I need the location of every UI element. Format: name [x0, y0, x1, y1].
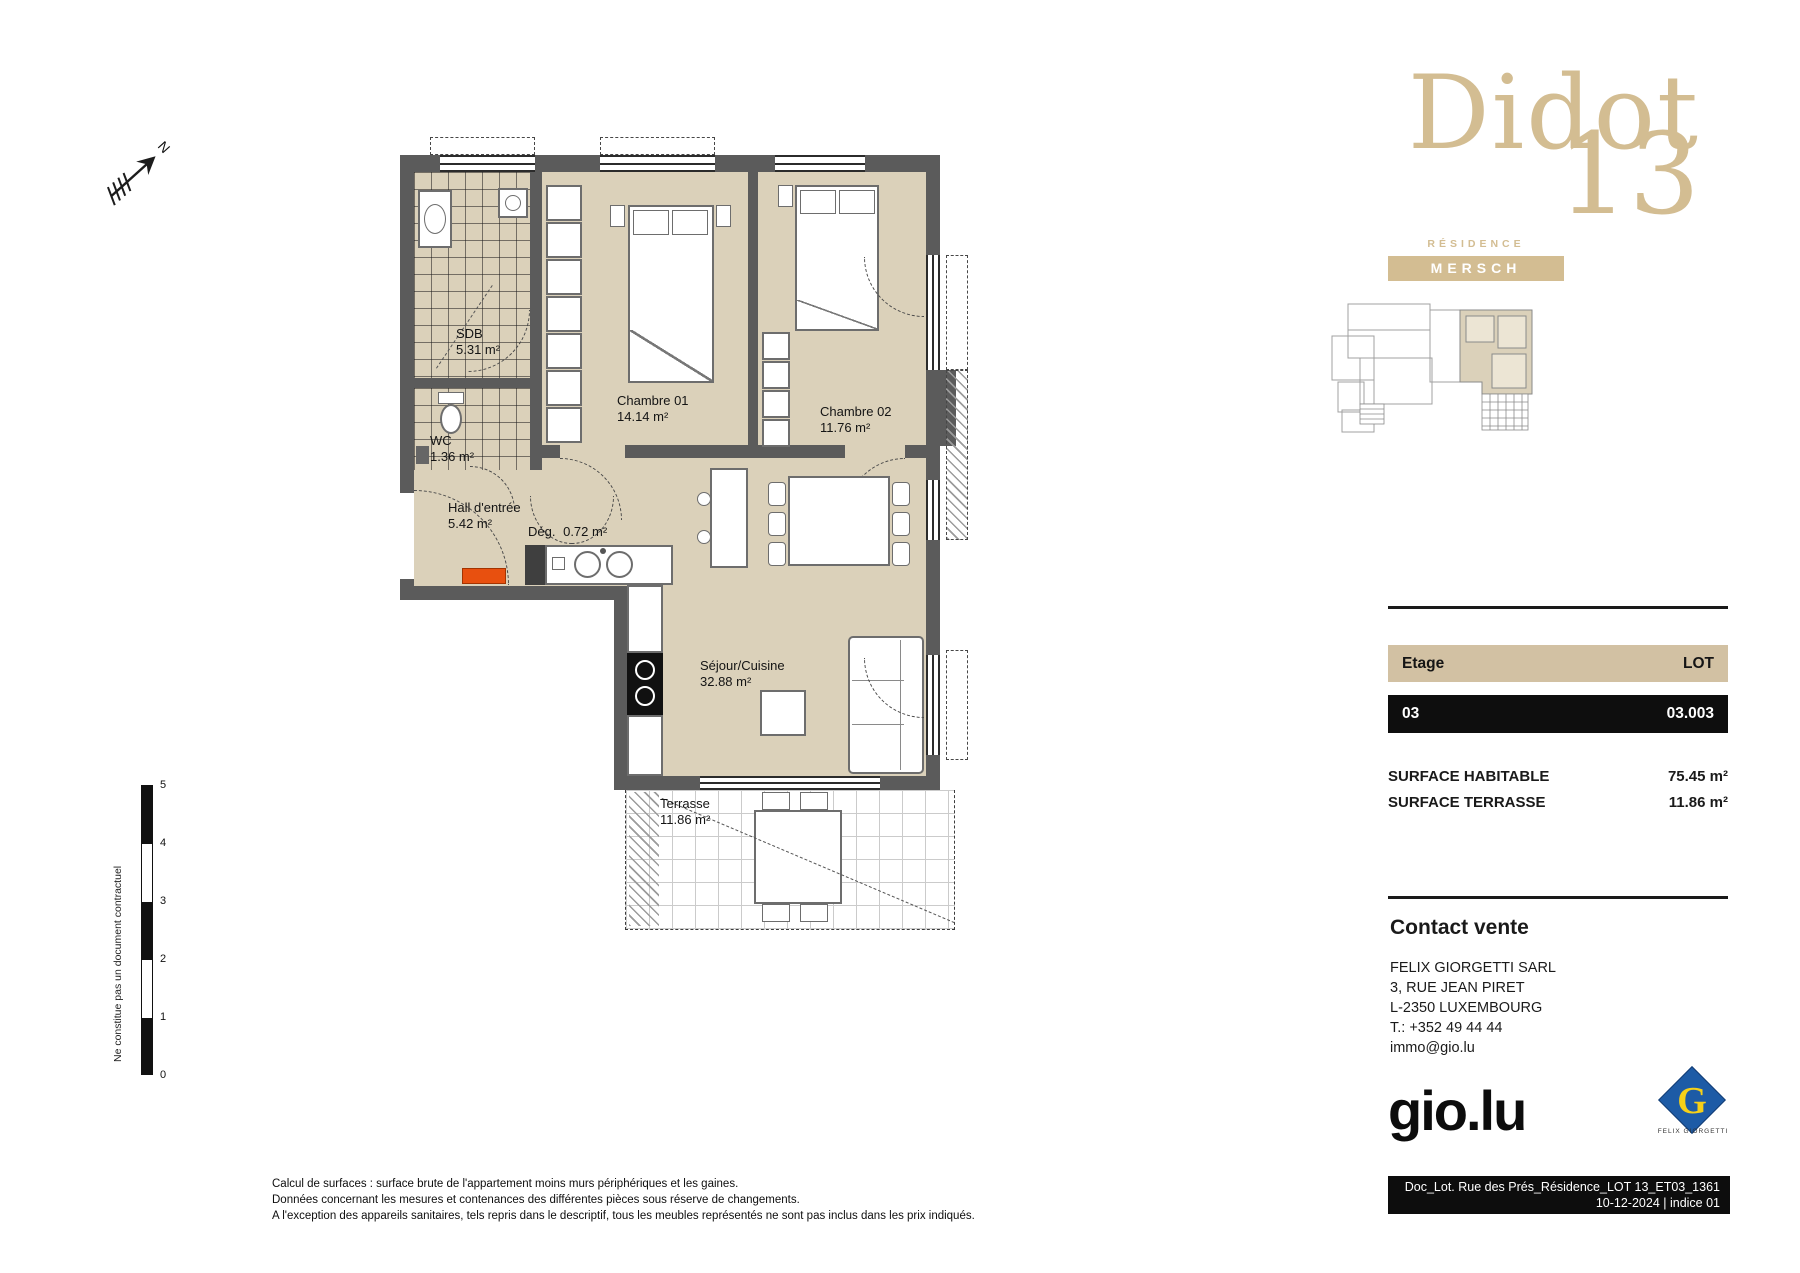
window-sejour-right [926, 480, 940, 540]
terrace-chair-icon [800, 904, 828, 922]
wardrobe-icon [762, 361, 790, 389]
dishwasher-icon [525, 545, 547, 585]
window-chambre01 [600, 155, 715, 172]
plan-sheet: N [0, 0, 1800, 1273]
scale-bar [141, 785, 153, 1075]
contact-city: L-2350 LUXEMBOURG [1390, 998, 1556, 1018]
room-name: WC [430, 433, 474, 449]
room-area: 11.76 m² [820, 420, 892, 436]
gio-logo: gio.lu [1388, 1078, 1525, 1143]
sink-drainer-icon [552, 557, 565, 570]
room-label-chambre02: Chambre 02 11.76 m² [820, 404, 892, 436]
room-area: 32.88 m² [700, 674, 785, 690]
room-area: 0.72 m² [563, 524, 607, 539]
lot-value: 03.003 [1667, 705, 1714, 723]
etage-value: 03 [1402, 705, 1419, 723]
toilet-icon [440, 404, 462, 434]
room-label-hall: Hall d'entrée 5.42 m² [448, 500, 521, 532]
french-door-chambre02 [926, 255, 940, 370]
doc-date-line: 10-12-2024 | indice 01 [1596, 1195, 1720, 1211]
side-note: Ne constitue pas un document contractuel [112, 866, 124, 1062]
wardrobe-icon [546, 370, 582, 406]
scale-segment [142, 786, 152, 844]
doc-ref-line: Doc_Lot. Rue des Prés_Résidence_LOT 13_E… [1405, 1179, 1720, 1195]
wall-bedrooms-south-c [905, 445, 926, 458]
entry-door-opening [400, 493, 414, 579]
wall-bedroom-divider [748, 172, 758, 458]
pillow-icon [800, 190, 836, 214]
pillow-icon [672, 210, 708, 235]
room-label-deg: Dég. 0.72 m² [528, 524, 607, 540]
wall-hall-bottom [400, 586, 628, 600]
scale-label: 4 [160, 837, 166, 849]
bed-fold-line [797, 300, 877, 329]
etage-header: Etage [1402, 655, 1444, 673]
wardrobe-icon [762, 332, 790, 360]
terrace-chair-icon [800, 792, 828, 810]
oven-dial-icon [635, 686, 655, 706]
pillow-icon [633, 210, 669, 235]
surface-habitable-row: SURFACE HABITABLE 75.45 m² [1388, 768, 1728, 785]
room-name: Terrasse [660, 796, 710, 812]
wall-sdb-wc [414, 378, 542, 388]
room-name: Dég. [528, 524, 555, 539]
room-label-sejour: Séjour/Cuisine 32.88 m² [700, 658, 785, 690]
giorgetti-caption: FELIX GIORGETTI [1648, 1128, 1738, 1135]
brand-number: 13 [1480, 118, 1700, 232]
room-label-wc: WC 1.36 m² [430, 433, 474, 465]
chair-icon [892, 482, 910, 506]
room-area: 1.36 m² [430, 449, 474, 465]
wardrobe-icon [546, 296, 582, 332]
disclaimer-line: Données concernant les mesures et conten… [272, 1192, 1082, 1208]
dashed-overhang-left [430, 137, 535, 155]
balcony-strip-3 [946, 650, 968, 760]
room-name: Séjour/Cuisine [700, 658, 785, 674]
kitchen-island-icon [710, 468, 748, 568]
surface-habitable-label: SURFACE HABITABLE [1388, 768, 1549, 785]
kitchen-tall-unit-icon [627, 585, 663, 653]
chair-icon [768, 542, 786, 566]
toilet-tank-icon [438, 392, 464, 404]
table-header-row: Etage LOT [1388, 645, 1728, 682]
disclaimer-line: Calcul de surfaces : surface brute de l'… [272, 1176, 1082, 1192]
room-name: Chambre 01 [617, 393, 689, 409]
lot-header: LOT [1683, 655, 1714, 673]
disclaimer: Calcul de surfaces : surface brute de l'… [272, 1176, 1082, 1224]
surface-habitable-value: 75.45 m² [1668, 768, 1728, 785]
sofa-cushion-line [852, 724, 904, 725]
wc-basin-icon [416, 446, 429, 464]
surface-terrasse-row: SURFACE TERRASSE 11.86 m² [1388, 794, 1728, 811]
room-name: SDB [456, 326, 500, 342]
chair-icon [892, 512, 910, 536]
room-area: 11.86 m² [660, 812, 710, 828]
room-label-chambre01: Chambre 01 14.14 m² [617, 393, 689, 425]
room-name: Chambre 02 [820, 404, 892, 420]
balcony-strip-1 [946, 255, 968, 370]
nightstand-icon [610, 205, 625, 227]
terrace-sliding-door [700, 776, 880, 790]
room-label-terrasse: Terrasse 11.86 m² [660, 796, 710, 828]
key-plan [1330, 296, 1540, 448]
chair-icon [892, 542, 910, 566]
washing-machine-drum-icon [505, 195, 521, 211]
window-chambre02 [775, 155, 865, 172]
french-door-sejour [926, 655, 940, 755]
wardrobe-icon [546, 185, 582, 221]
wall-living-left [614, 600, 628, 790]
terrace-chair-icon [762, 792, 790, 810]
stool-icon [697, 492, 711, 506]
room-area: 5.31 m² [456, 342, 500, 358]
wardrobe-icon [546, 407, 582, 443]
brand-city-band: MERSCH [1388, 256, 1564, 281]
terrace-hatch-strip [629, 792, 659, 926]
divider-rule-top [1388, 606, 1728, 609]
stool-icon [697, 530, 711, 544]
contact-title: Contact vente [1390, 916, 1529, 940]
scale-segment [142, 902, 152, 960]
sink-bowl-icon [606, 551, 633, 578]
contact-company: FELIX GIORGETTI SARL [1390, 958, 1556, 978]
wall-bedrooms-south-a [540, 445, 560, 458]
scale-label: 5 [160, 779, 166, 791]
wardrobe-icon [546, 333, 582, 369]
brand-residence-label: RÉSIDENCE [1400, 238, 1552, 250]
faucet-icon [600, 548, 606, 554]
surface-terrasse-value: 11.86 m² [1669, 794, 1728, 811]
window-sdb [440, 155, 535, 172]
wall-bedrooms-south-b [625, 445, 845, 458]
terrace-chair-icon [762, 904, 790, 922]
wardrobe-icon [546, 259, 582, 295]
coffee-table-icon [760, 690, 806, 736]
wardrobe-icon [762, 390, 790, 418]
contact-phone: T.: +352 49 44 44 [1390, 1018, 1556, 1038]
north-letter: N [155, 138, 174, 156]
pillow-icon [839, 190, 875, 214]
kitchen-base-unit-icon [627, 715, 663, 776]
room-area: 5.42 m² [448, 516, 521, 532]
contact-email[interactable]: immo@gio.lu [1390, 1038, 1556, 1058]
contact-street: 3, RUE JEAN PIRET [1390, 978, 1556, 998]
north-arrow-icon: N [92, 128, 182, 218]
radiator-icon [462, 568, 506, 584]
room-label-sdb: SDB 5.31 m² [456, 326, 500, 358]
table-value-row: 03 03.003 [1388, 695, 1728, 733]
scale-label: 2 [160, 953, 166, 965]
wardrobe-icon [546, 222, 582, 258]
dining-table-icon [788, 476, 890, 566]
wardrobe-icon [762, 419, 790, 447]
scale-label: 0 [160, 1069, 166, 1081]
scale-segment [142, 1018, 152, 1074]
giorgetti-letter: G [1668, 1082, 1716, 1120]
balcony-strip-2 [946, 370, 968, 540]
doc-reference-bar: Doc_Lot. Rue des Prés_Résidence_LOT 13_E… [1388, 1176, 1730, 1214]
wall-sdb-right [530, 172, 542, 388]
oven-dial-icon [635, 660, 655, 680]
scale-label: 1 [160, 1011, 166, 1023]
chair-icon [768, 482, 786, 506]
contact-block: FELIX GIORGETTI SARL 3, RUE JEAN PIRET L… [1390, 958, 1556, 1058]
chair-icon [768, 512, 786, 536]
sink-bowl-icon [574, 551, 601, 578]
room-name: Hall d'entrée [448, 500, 521, 516]
washbasin-icon [424, 204, 446, 234]
scale-label: 3 [160, 895, 166, 907]
bed-fold-line [630, 330, 712, 381]
disclaimer-line: A l'exception des appareils sanitaires, … [272, 1208, 1082, 1224]
nightstand-icon [716, 205, 731, 227]
surface-terrasse-label: SURFACE TERRASSE [1388, 794, 1546, 811]
divider-rule-contact [1388, 896, 1728, 899]
room-area: 14.14 m² [617, 409, 689, 425]
dashed-overhang-mid [600, 137, 715, 155]
nightstand-icon [778, 185, 793, 207]
